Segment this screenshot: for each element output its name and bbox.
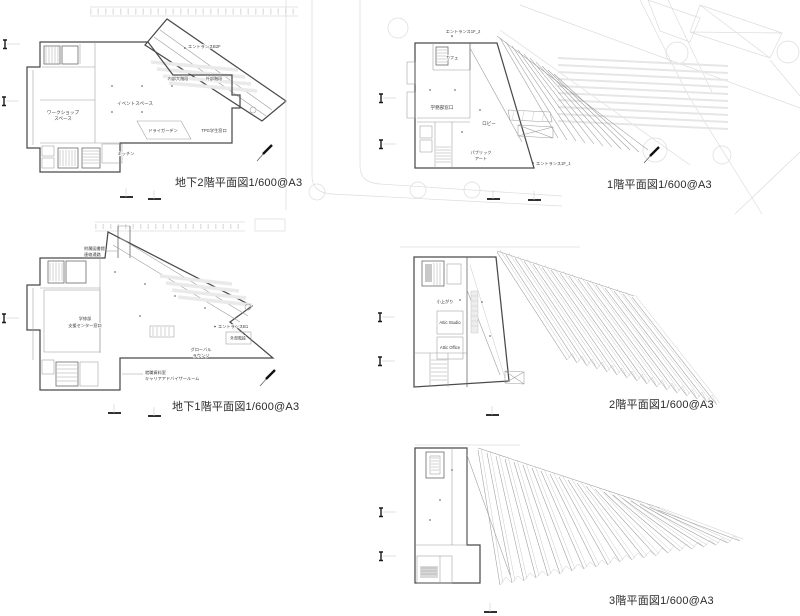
survey-tick-icon [148,190,161,199]
slope-arrow-icon [260,370,275,386]
section-marker-icon [3,40,20,49]
section-marker-icon [379,552,396,561]
plan-3f-title: 3階平面図1/600@A3 [609,592,714,608]
room-label-library-2: 連絡通路 [84,251,102,258]
slope-arrow-icon [644,147,659,163]
plan-2f-title: 2階平面図1/600@A3 [609,396,714,412]
room-label-library-1: 附属図書館 [84,245,105,252]
section-marker-icon [2,97,19,106]
site-context [286,0,800,214]
room-label-global-2: ラウンジ [193,352,210,359]
drawing-canvas: エントランスB2F 内部大階段 外部階段 イベントスペース ワークショップ スペ… [0,0,800,616]
room-label-kitchen: キッチン [118,151,135,156]
plan-b2-drawing: エントランスB2F 内部大階段 外部階段 イベントスペース ワークショップ スペ… [2,7,298,199]
room-label-lobby: ロビー [482,120,496,126]
room-label-gakumu-window: 学務部窓口 [431,104,454,111]
tree-icon [777,41,799,63]
drawing-sheet: エントランスB2F 内部大階段 外部階段 イベントスペース ワークショップ スペ… [0,0,800,616]
section-marker-icon [2,314,19,323]
survey-tick-icon [120,188,133,197]
survey-tick-icon [148,407,161,416]
plan-2f-drawing: 小上がり Attic Studio Attic Office [378,247,720,415]
survey-tick-icon [484,603,497,612]
section-marker-icon [379,508,396,517]
room-label-support-2: 支援センター窓口 [68,322,102,329]
room-label-public-art-1: パブリック [471,149,492,156]
room-label-global-1: グローバル [191,346,212,353]
section-marker-icon [379,140,396,149]
tree-icon [713,146,731,164]
survey-tick-icon [486,406,499,415]
plan-b2-title: 地下2階平面図1/600@A3 [175,174,302,190]
tree-icon [410,182,426,198]
room-label-inner-stair: 内部大階段 [168,75,190,82]
room-label-career-1: 就職資料室 [145,369,166,376]
section-marker-icon [379,94,396,103]
room-label-dry-garden: ドライガーデン [148,127,177,134]
survey-tick-icon [528,191,541,200]
plan-3f-drawing [379,445,743,612]
room-label-attic-studio: Attic Studio [439,320,461,325]
room-label-event-space: イベントスペース [117,101,154,106]
room-label-attic-office: Attic Office [440,345,461,350]
section-marker-icon [378,357,395,366]
room-label-outer-stair-b1: 外部階段 [230,336,246,341]
tree-icon [388,18,408,38]
room-label-tpg-window: TPG学生窓口 [201,127,226,133]
room-label-entrance-1f1: エントランス1F_1 [536,161,571,167]
room-label-koagari: 小上がり [437,298,454,305]
room-label-support-1: 学修部 [79,315,92,322]
plan-b1-drawing: 附属図書館 連絡通路 学修部 支援センター窓口 エントランスB1 外部階段 グロ… [2,219,285,416]
section-marker-icon [378,313,395,322]
plan-b1-title: 地下1階平面図1/600@A3 [172,398,299,414]
plan-1f-title: 1階平面図1/600@A3 [607,176,712,192]
plan-1f-drawing: エントランス1F_2 カフェ 学務部窓口 ロビー パブリック アート エントラン… [286,0,800,214]
room-label-career-2: キャリアアドバイザールーム [145,376,199,382]
room-label-workshop-2: スペース [54,116,72,121]
survey-tick-icon [108,404,121,413]
room-label-outer-stair: 外部階段 [206,75,224,82]
slope-arrow-icon [257,145,272,161]
tree-icon [666,42,688,64]
room-label-entrance-1f2: エントランス1F_2 [446,29,481,35]
